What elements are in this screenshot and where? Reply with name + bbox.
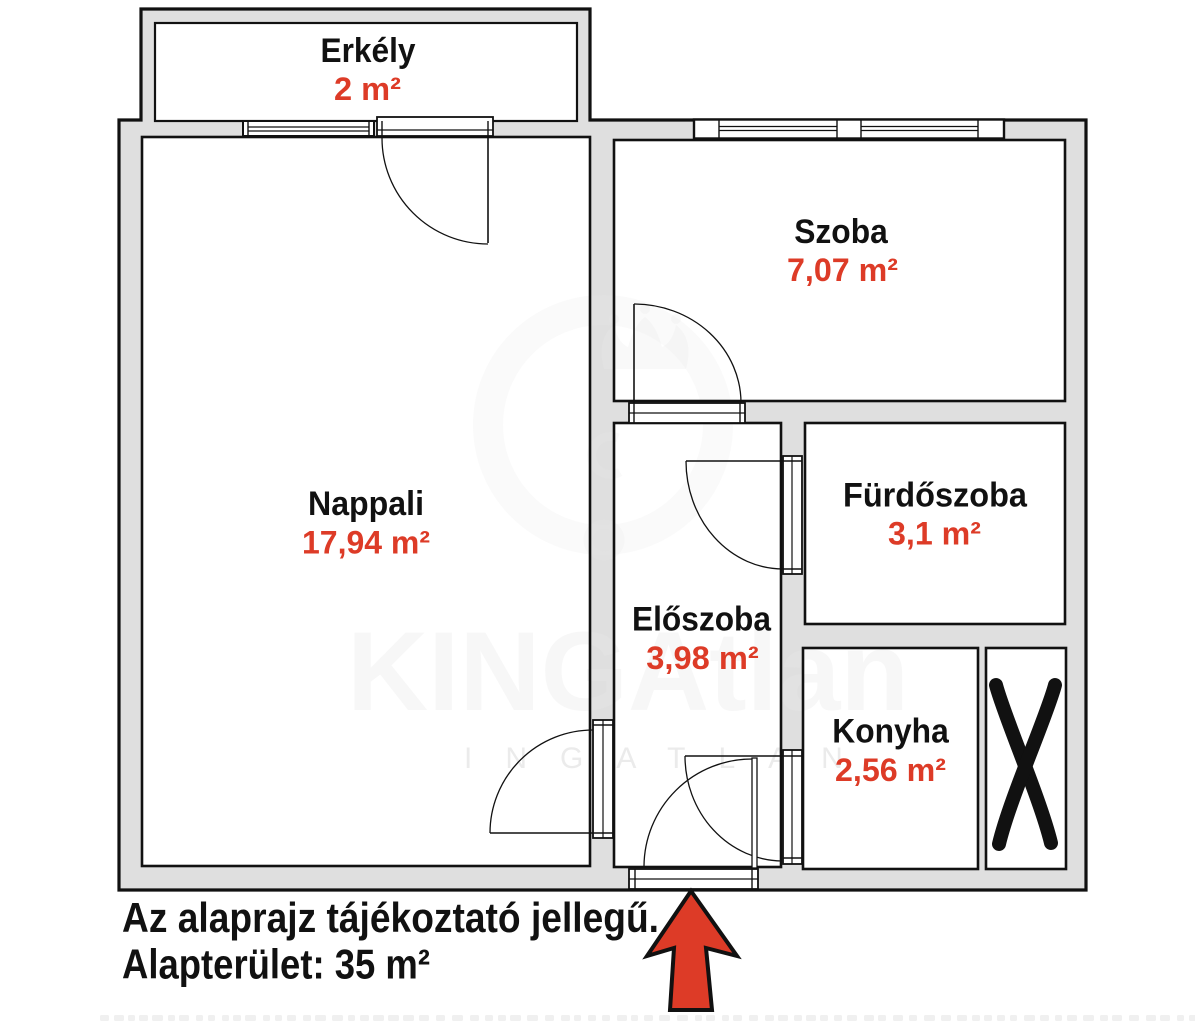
svg-text:Erkély: Erkély	[321, 32, 416, 70]
svg-text:3,1 m²: 3,1 m²	[888, 516, 981, 552]
svg-text:Konyha: Konyha	[832, 713, 950, 751]
svg-text:Fürdőszoba: Fürdőszoba	[843, 477, 1028, 515]
svg-text:2,56 m²: 2,56 m²	[835, 752, 946, 788]
svg-text:Alapterület: 35 m²: Alapterület: 35 m²	[122, 941, 430, 988]
svg-text:Nappali: Nappali	[308, 485, 424, 523]
svg-text:7,07 m²: 7,07 m²	[787, 252, 898, 288]
svg-text:Előszoba: Előszoba	[632, 601, 772, 639]
svg-text:KINGAtlan: KINGAtlan	[347, 609, 909, 734]
svg-text:Szoba: Szoba	[794, 213, 889, 251]
svg-text:Az alaprajz tájékoztató jelleg: Az alaprajz tájékoztató jellegű.	[122, 894, 659, 941]
svg-text:17,94 m²: 17,94 m²	[302, 525, 430, 561]
svg-text:INGATLAN: INGATLAN	[464, 742, 876, 775]
svg-text:3,98 m²: 3,98 m²	[646, 640, 759, 676]
svg-text:2 m²: 2 m²	[334, 71, 401, 107]
